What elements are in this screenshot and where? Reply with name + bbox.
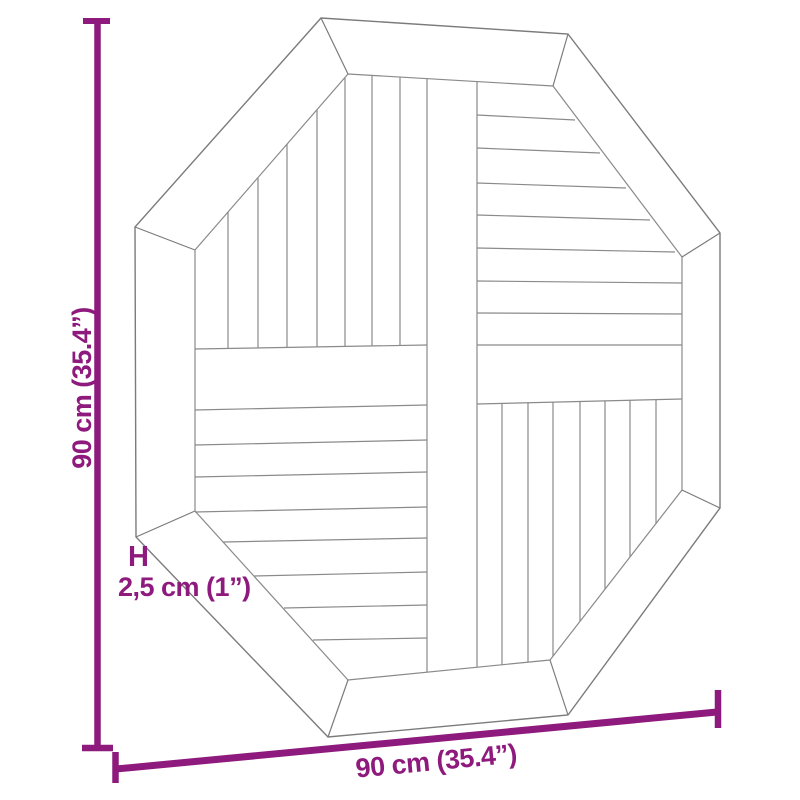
- thickness-dimension-label: 2,5 cm (1”): [118, 572, 251, 602]
- tabletop-linework: [135, 18, 720, 737]
- height-dimension-label: 90 cm (35.4”): [67, 307, 97, 469]
- thickness-prefix-label: H: [128, 541, 149, 573]
- product-dimension-diagram: 90 cm (35.4”) 90 cm (35.4”) H 2,5 cm (1”…: [0, 0, 800, 800]
- diagram-svg: 90 cm (35.4”) 90 cm (35.4”) H 2,5 cm (1”…: [0, 0, 800, 800]
